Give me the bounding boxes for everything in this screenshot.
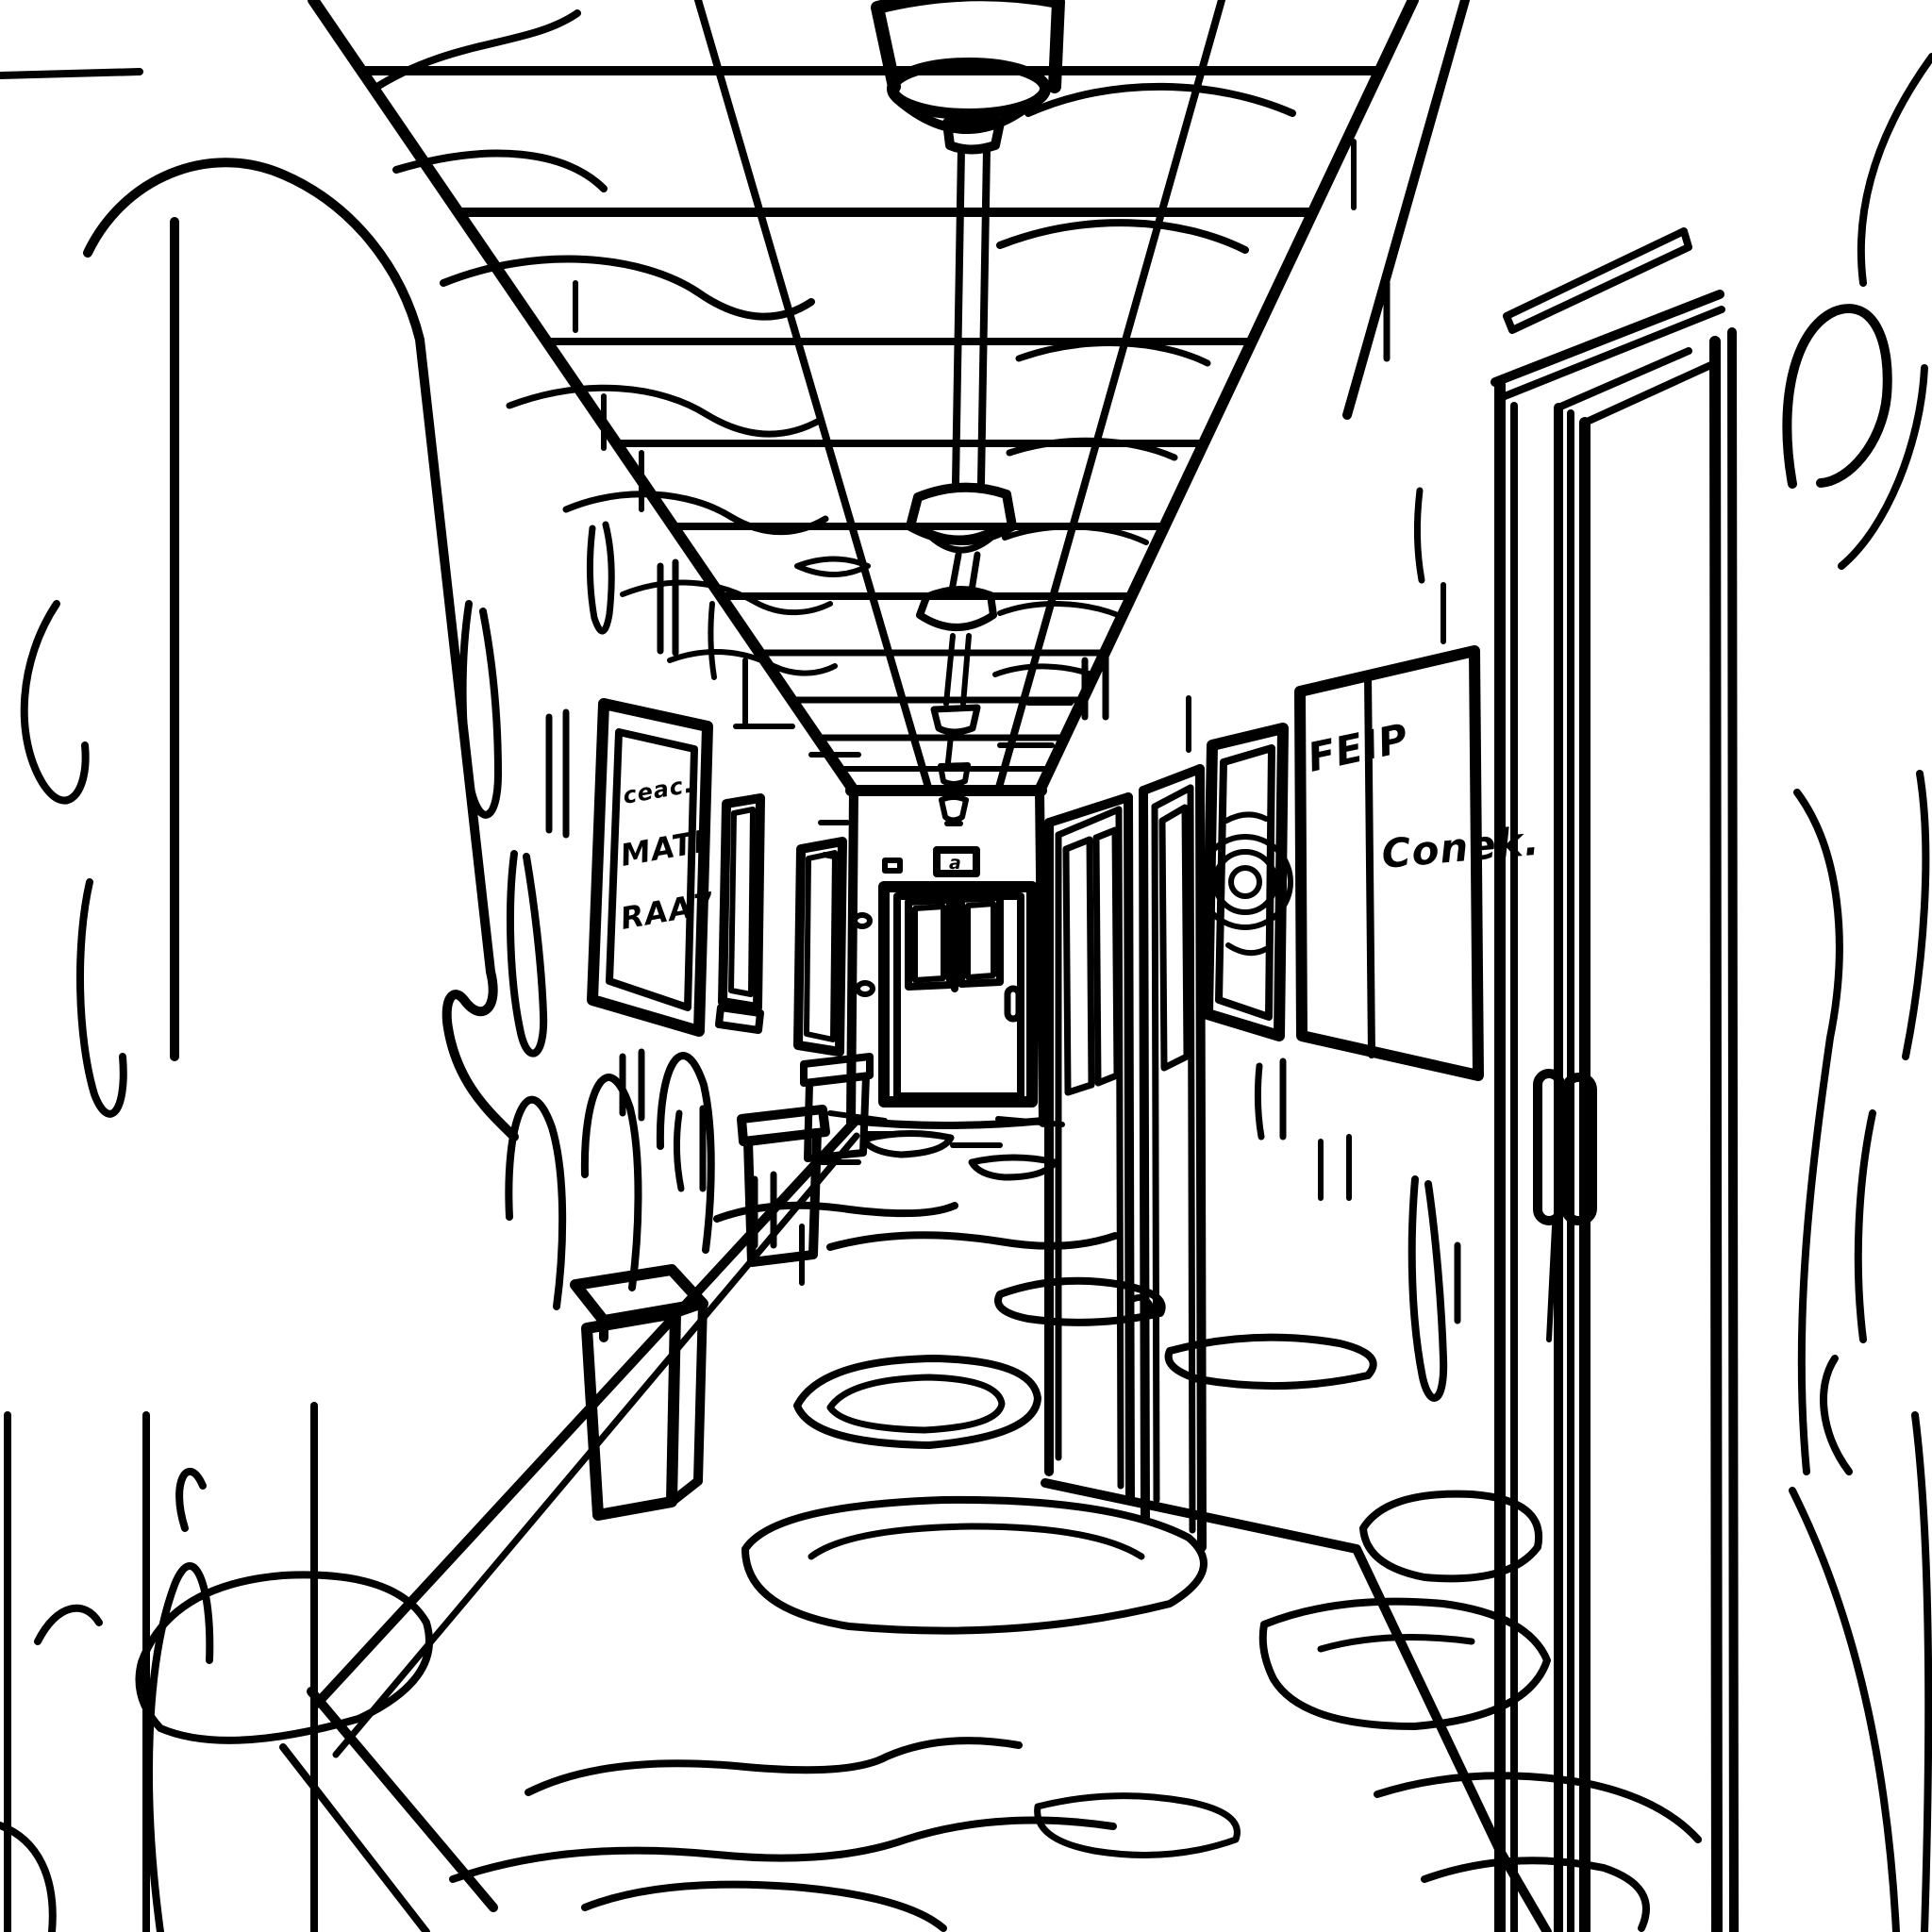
hallway-drawing: a ceac. MATI RAA7 — [0, 0, 1932, 1932]
left-wall-window-frames — [719, 798, 842, 1052]
whiteboard-top-label: FEIP — [1304, 714, 1413, 780]
door-handle — [1538, 1074, 1560, 1221]
door-window — [1162, 808, 1187, 1068]
coloring-page: a ceac. MATI RAA7 — [0, 0, 1932, 1932]
trash-can — [587, 1313, 675, 1515]
end-door-handle — [1008, 989, 1019, 1019]
left-wall-poster: ceac. MATI RAA7 — [592, 704, 717, 1031]
foreground-door — [1495, 231, 1734, 1932]
door-window — [1066, 840, 1091, 1092]
right-wall-far-doors — [1049, 769, 1202, 1547]
round-picture-frame — [1200, 728, 1291, 1036]
wall-outlet-icon — [855, 915, 870, 926]
ceiling-grid — [313, 0, 1465, 791]
wall-outlet-icon — [858, 983, 873, 994]
exit-sign-label: a — [949, 853, 962, 874]
trash-cans — [575, 1057, 870, 1515]
exit-sign: a — [937, 850, 976, 874]
carpet-swirls — [140, 1133, 1699, 1928]
poster-text: ceac. — [621, 771, 695, 809]
door-window — [1096, 830, 1117, 1083]
